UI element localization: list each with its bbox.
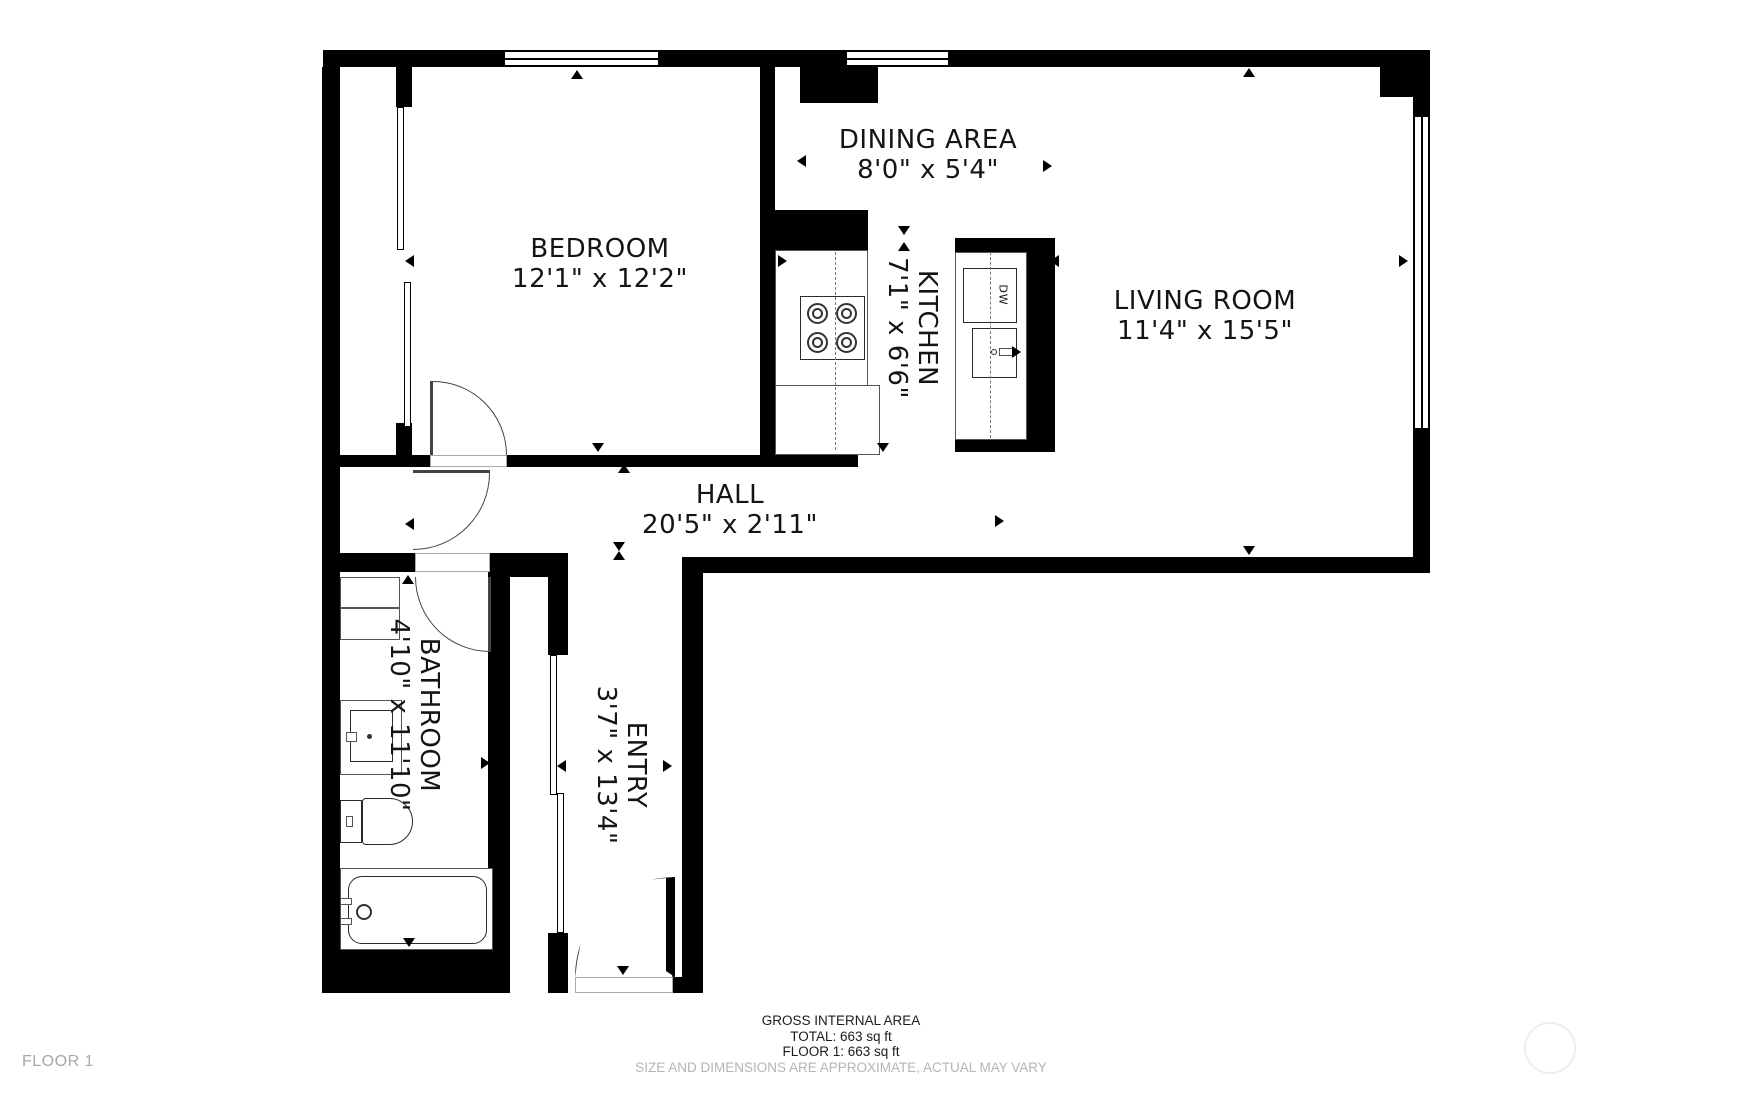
window xyxy=(1413,115,1430,430)
wall xyxy=(950,50,1380,67)
wall xyxy=(800,67,878,103)
door-arc xyxy=(433,381,507,455)
stove-burner-icon xyxy=(807,303,828,324)
sink-faucet-arrow-icon xyxy=(1012,346,1021,358)
sliding-door-panel xyxy=(397,107,404,250)
tub-drain-icon xyxy=(356,904,372,920)
dimension-arrow-up-icon xyxy=(898,242,910,251)
window xyxy=(503,50,660,67)
room-dims: 8'0" x 5'4" xyxy=(839,155,1017,185)
dimension-arrow-right-icon xyxy=(778,255,787,267)
door-opening xyxy=(575,977,673,993)
room-dims: 20'5" x 2'11" xyxy=(642,510,818,540)
room-label-dining: DINING AREA 8'0" x 5'4" xyxy=(839,125,1017,185)
dishwasher-label: DW xyxy=(997,284,1010,305)
dimension-marker-icon xyxy=(613,551,625,560)
wall xyxy=(775,455,858,467)
sliding-door-panel xyxy=(557,793,564,933)
stove-burner-icon xyxy=(836,303,857,324)
door-arc xyxy=(575,877,675,977)
counter-centerline xyxy=(990,252,991,438)
floor-tag: FLOOR 1 xyxy=(22,1053,94,1071)
closet-wall xyxy=(548,933,568,993)
wall xyxy=(507,455,775,467)
room-name: LIVING ROOM xyxy=(1114,286,1296,316)
sink-drain-icon xyxy=(991,349,997,355)
dimension-arrow-left-icon xyxy=(405,518,414,530)
area-summary: GROSS INTERNAL AREA TOTAL: 663 sq ft FLO… xyxy=(635,1013,1047,1075)
wall xyxy=(1413,97,1430,115)
wall xyxy=(760,210,868,250)
stove-burner-icon xyxy=(807,332,828,353)
room-label-living: LIVING ROOM 11'4" x 15'5" xyxy=(1114,286,1296,346)
dimension-arrow-down-icon xyxy=(403,938,415,947)
kitchen-counter xyxy=(775,385,880,455)
tub-tap-icon xyxy=(340,898,352,905)
dimension-arrow-right-icon xyxy=(663,760,672,772)
door-opening xyxy=(430,455,507,467)
closet-wall xyxy=(548,577,568,655)
room-dims: 3'7" x 13'4" xyxy=(591,686,621,845)
wall xyxy=(323,50,503,67)
closet-wall xyxy=(396,423,412,467)
room-dims: 11'4" x 15'5" xyxy=(1114,316,1296,346)
wall xyxy=(340,455,430,467)
dimension-arrow-up-icon xyxy=(571,70,583,79)
dimension-arrow-left-icon xyxy=(557,760,566,772)
wall xyxy=(682,557,1430,573)
room-label-bedroom: BEDROOM 12'1" x 12'2" xyxy=(512,234,688,294)
room-name: ENTRY xyxy=(621,686,651,845)
kitchen-island-wall xyxy=(1027,252,1055,440)
floor-plan: DW BEDROOM 12'1" x 12'2" DINI xyxy=(0,0,1753,1095)
sliding-door-panel xyxy=(404,282,411,427)
stove-burner-icon xyxy=(836,332,857,353)
room-dims: 4'10" x 11'10" xyxy=(384,619,414,812)
sink-tap-icon xyxy=(346,732,357,742)
room-name: HALL xyxy=(642,480,818,510)
door-opening xyxy=(415,553,490,572)
dimension-arrow-right-icon xyxy=(1399,255,1408,267)
room-name: BEDROOM xyxy=(512,234,688,264)
wall xyxy=(322,950,510,993)
total-area: TOTAL: 663 sq ft xyxy=(635,1029,1047,1045)
room-label-kitchen: KITCHEN 7'1" x 6'6" xyxy=(882,257,942,399)
disclaimer: SIZE AND DIMENSIONS ARE APPROXIMATE, ACT… xyxy=(635,1060,1047,1076)
dimension-arrow-down-icon xyxy=(592,443,604,452)
dimension-arrow-down-icon xyxy=(898,226,910,235)
closet-wall xyxy=(396,67,412,107)
door-arc xyxy=(413,473,490,550)
wall xyxy=(322,67,340,993)
dimension-arrow-left-icon xyxy=(1050,255,1059,267)
wall xyxy=(673,977,703,993)
wall xyxy=(660,50,845,67)
dimension-arrow-down-icon xyxy=(617,966,629,975)
wall xyxy=(322,553,415,572)
dimension-arrow-right-icon xyxy=(481,757,490,769)
dimension-arrow-left-icon xyxy=(797,155,806,167)
dimension-arrow-up-icon xyxy=(402,575,414,584)
dimension-arrow-left-icon xyxy=(405,255,414,267)
room-dims: 12'1" x 12'2" xyxy=(512,264,688,294)
room-label-hall: HALL 20'5" x 2'11" xyxy=(642,480,818,540)
wall xyxy=(682,573,703,993)
gross-area-title: GROSS INTERNAL AREA xyxy=(635,1013,1047,1029)
window xyxy=(845,50,950,67)
kitchen-island-wall xyxy=(955,238,1055,252)
toilet-button-icon xyxy=(346,816,353,827)
sink-faucet-icon xyxy=(999,348,1013,356)
dimension-arrow-up-icon xyxy=(618,464,630,473)
room-name: KITCHEN xyxy=(912,257,942,399)
dimension-arrow-right-icon xyxy=(1043,160,1052,172)
sink-drain-icon xyxy=(367,734,372,739)
tub-tap-icon xyxy=(340,918,352,925)
dimension-arrow-up-icon xyxy=(1243,68,1255,77)
room-dims: 7'1" x 6'6" xyxy=(882,257,912,399)
room-label-entry: ENTRY 3'7" x 13'4" xyxy=(591,686,651,845)
sliding-door-panel xyxy=(550,655,557,795)
dimension-arrow-left-icon xyxy=(331,757,340,769)
dimension-arrow-right-icon xyxy=(995,515,1004,527)
room-name: DINING AREA xyxy=(839,125,1017,155)
dimension-arrow-up-icon xyxy=(846,70,858,79)
kitchen-island-wall xyxy=(955,440,1055,452)
wall xyxy=(760,67,775,467)
dimension-arrow-down-icon xyxy=(877,443,889,452)
floor1-area: FLOOR 1: 663 sq ft xyxy=(635,1044,1047,1060)
compass-circle-icon xyxy=(1524,1022,1576,1074)
wall xyxy=(1413,430,1430,573)
dimension-arrow-down-icon xyxy=(1243,546,1255,555)
bathroom-shelf xyxy=(340,577,400,608)
wall xyxy=(1380,50,1430,97)
room-name: BATHROOM xyxy=(414,619,444,812)
dimension-marker-icon xyxy=(613,542,625,551)
counter-centerline xyxy=(835,252,836,450)
room-label-bathroom: BATHROOM 4'10" x 11'10" xyxy=(384,619,444,812)
